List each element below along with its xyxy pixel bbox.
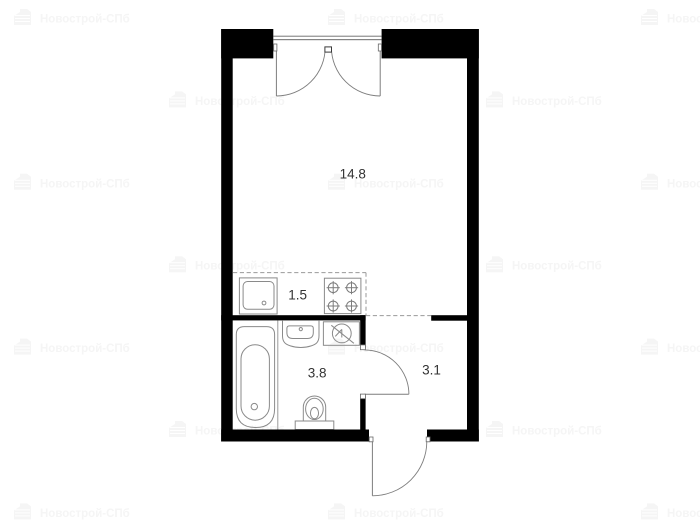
svg-text:3.8: 3.8 <box>308 365 327 380</box>
svg-text:1.5: 1.5 <box>288 288 307 303</box>
svg-text:14.8: 14.8 <box>340 167 366 182</box>
svg-text:3.1: 3.1 <box>422 363 441 378</box>
